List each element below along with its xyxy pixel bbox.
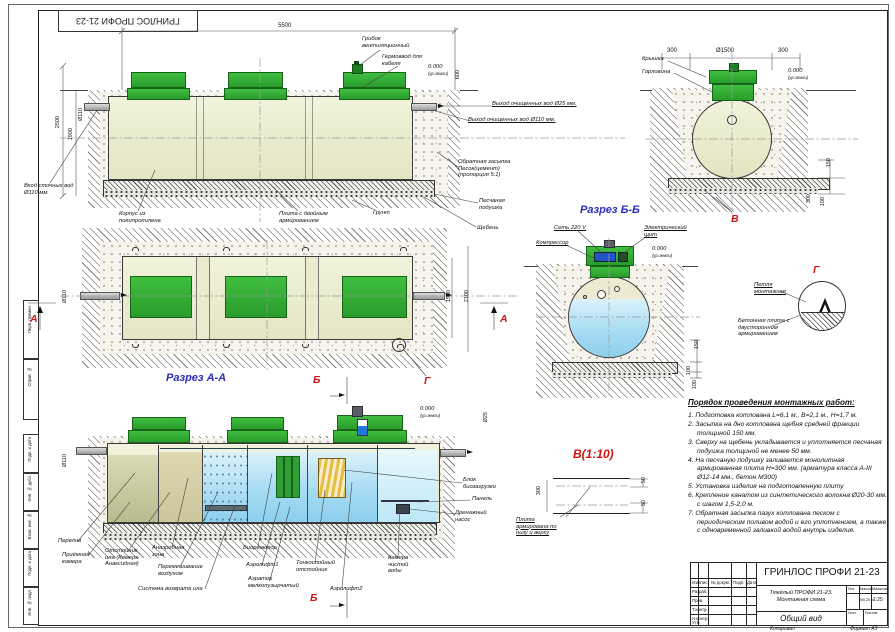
label-cap: Крышка — [642, 56, 672, 63]
dim-300-v: 300 — [536, 486, 542, 495]
lid-top — [131, 72, 186, 88]
ground-line-bb — [682, 266, 698, 267]
label-out25: Выход очищенных вод Ø25 мм. — [492, 101, 584, 108]
label-slab: Плита с двойным армированием — [279, 211, 341, 224]
detail-g-circle — [798, 281, 846, 331]
label-chamber: Камера чистой воды — [388, 555, 420, 575]
drainage-pump — [396, 504, 410, 514]
inlet-arrow-plan — [121, 293, 127, 297]
section-mark-b-top: Б — [313, 374, 320, 386]
lifting-loop-circled — [392, 338, 406, 352]
dim-1500: 1500 — [446, 290, 452, 302]
stamp-desc: Тяжёлый ПРОФИ 21-23.Монтажная схема — [758, 590, 844, 605]
inlet-pipe — [84, 103, 110, 111]
dim-2500: 2500 — [55, 116, 61, 128]
worklist-item: 7. Обратная засыпка пазух котлована песк… — [688, 510, 888, 535]
inlet-pipe-aa — [76, 447, 107, 455]
label-loop: Петля монтажная — [754, 282, 794, 295]
biofilter-plate — [292, 456, 300, 498]
margin-label: Взам. инв. № — [27, 513, 32, 539]
label-body: Корпус из полипропилена — [119, 211, 171, 224]
chamber-wall — [377, 445, 378, 522]
label-out110: Выход очищенных вод Ø110 мм. — [468, 117, 564, 124]
tank-circle-cross — [692, 99, 772, 179]
dim-2100: 2100 — [464, 290, 470, 302]
margin-cell: Подп. и дата — [23, 434, 39, 474]
stamp-brand: ГРИНЛОС ПРОФИ 21-23 — [759, 567, 885, 578]
dim-d110-aa: Ø110 — [62, 454, 68, 467]
label-chamber: Биореактор — [243, 545, 279, 552]
label-chamber: Тонкослойный отстойник — [296, 560, 338, 573]
lid — [339, 88, 410, 100]
section-mark-a-right: А — [500, 313, 508, 325]
stamp-sheet: Лист — [848, 611, 856, 615]
label-pump: Дренажный насос — [455, 510, 493, 523]
outlet-arrow-aa — [467, 450, 473, 454]
air-pipe — [160, 448, 415, 449]
dim-1900: 1900 — [68, 128, 74, 140]
worklist: Порядок проведения монтажных работ: 1. П… — [688, 398, 888, 558]
worklist-item: 3. Сверху на щебень укладывается и уплот… — [688, 439, 888, 456]
dim-1500c: Ø1500 — [716, 48, 734, 54]
label-backfill: Обратная засыпка Песок(цемент) (пропорци… — [458, 159, 518, 179]
stamp-mass-h: Масса — [860, 587, 871, 591]
stamp-row: Разраб. — [692, 589, 707, 594]
ground-line — [60, 90, 88, 91]
caption-razrez-aa: Разрез А-А — [166, 372, 226, 384]
label-panel: Панель — [472, 496, 500, 503]
chamber-wall — [247, 445, 248, 522]
stamp-row: Утв. — [692, 620, 700, 625]
section-mark-a-left: А — [30, 313, 38, 325]
chamber-aerobic — [202, 452, 247, 522]
dim-d110-plan: Ø110 — [62, 290, 68, 303]
caption-detail-v: В(1:10) — [573, 447, 614, 461]
worklist-item: 1. Подготовка котлована L=6,1 м., B=2,1 … — [688, 412, 888, 420]
stamp-view: Общий вид — [758, 614, 844, 623]
margin-label: Справ. № — [27, 367, 32, 387]
margin-cell: Подп. и дата — [23, 548, 39, 588]
label-chamber: Аэролифт2 — [330, 586, 362, 593]
stamp-scale: 1:25 — [873, 597, 883, 603]
label-bio-block: Блок биозагрузки — [463, 477, 497, 490]
lid — [224, 88, 287, 100]
chamber-sludge — [158, 452, 202, 522]
margin-cell: Инв. № дубл. — [23, 472, 39, 512]
worklist-item: 6. Крепление канатом из синтетического в… — [688, 492, 888, 509]
panel-plate — [381, 500, 429, 502]
level-mark: 0.000(ур.земли) — [428, 64, 462, 77]
label-chamber: Анаэробная зона — [152, 545, 188, 558]
caption-razrez-bb: Разрез Б-Б — [580, 204, 640, 216]
lifting-loop — [302, 247, 309, 251]
worklist-item: 4. На песчаную подушку заливается моноли… — [688, 457, 888, 482]
label-soil: Грунт — [373, 210, 403, 217]
tank-circle-bb — [568, 276, 650, 358]
label-chamber: Аэролифт1 — [246, 562, 278, 569]
label-plate-v: Плита армирована по низу и верху — [516, 517, 568, 537]
lifting-loop — [400, 247, 407, 251]
tank-plan-inner — [196, 257, 210, 339]
dim-300b: 300 — [806, 194, 812, 203]
ground-line-cross — [806, 90, 856, 91]
water-bb — [569, 299, 650, 358]
compressor-vent — [604, 240, 615, 248]
neck-bb — [590, 266, 630, 278]
section-mark-b-bottom: Б — [310, 592, 317, 604]
margin-cell: Справ. № — [23, 358, 39, 420]
stamp-row: Т.контр. — [692, 607, 708, 612]
label-sand-cushion: Песчаная подушка — [479, 198, 517, 211]
chamber-wall — [202, 445, 203, 522]
dim-100b-bb: 100 — [692, 380, 698, 389]
bio-media-block — [318, 458, 346, 498]
bubble — [597, 290, 606, 299]
outlet-arrow — [438, 104, 444, 108]
lid-aa-top — [337, 415, 403, 430]
dim-d110: Ø110 — [78, 108, 84, 121]
label-vent: Грибок вентиляционный — [362, 36, 424, 49]
title-block: Изм. Лист № докум. Подп. Дата Разраб. Пр… — [690, 562, 888, 626]
tank-body-side — [108, 96, 413, 180]
stamp-head: № докум. — [711, 580, 730, 585]
lid-aa — [227, 430, 288, 443]
bubble — [583, 295, 587, 299]
worklist-item: 5. Установка изделия на подготовленную п… — [688, 483, 888, 491]
compressor-unit — [594, 252, 616, 262]
biofilter-plate — [284, 456, 292, 498]
detail-mark-g: Г — [813, 264, 819, 276]
margin-cell: Инв. № подл. — [23, 586, 39, 625]
tank-rib — [203, 97, 204, 179]
label-el-panel: Электрический щит — [644, 225, 690, 238]
label-chamber: Отстойник ила (Камера Анаксидная) — [105, 548, 147, 568]
corner-stamp: ГРИНЛОС ПРОФИ 21-23 — [58, 10, 198, 32]
dim-100: 100 — [820, 197, 826, 206]
dim-300r: 300 — [778, 48, 788, 54]
section-arrow-a-left — [37, 306, 43, 313]
label-chamber: Система возврата ила — [138, 586, 208, 593]
section-arrow-b-bottom — [339, 603, 345, 607]
dim-300l: 300 — [667, 48, 677, 54]
tank-rib — [305, 97, 306, 179]
outlet-pipe-plan — [413, 292, 445, 300]
chamber-wall — [158, 445, 159, 522]
worklist-item: 2. Засыпка на дно котлована щебня средне… — [688, 421, 888, 438]
lid-aa — [333, 430, 407, 443]
dim-5500: 5500 — [278, 23, 291, 29]
label-chamber: Приёмная камера — [62, 552, 96, 565]
lid-aa — [128, 430, 190, 443]
tank-plan-inner — [305, 257, 319, 339]
detail-mark-g-plan: Г — [424, 375, 430, 387]
label-compressor: Компрессор — [536, 240, 578, 247]
margin-label: Подп. и дата — [27, 551, 32, 576]
margin-cell: Взам. инв. № — [23, 510, 39, 550]
detail-v-slab — [553, 478, 630, 514]
stamp-scale-h: Масштаб — [872, 587, 888, 591]
stamp-copied: Копировал — [770, 626, 795, 632]
margin-label: Инв. № подл. — [27, 589, 32, 616]
stamp-head: Лист — [700, 580, 709, 585]
inlet-pipe-plan — [80, 292, 120, 300]
lid — [127, 88, 190, 100]
lid-top — [228, 72, 283, 88]
outlet-pipe — [411, 103, 437, 111]
outlet-pipe-aa — [440, 449, 466, 457]
dim-100a-bb: 100 — [686, 366, 692, 375]
label-neck: Горловина — [642, 69, 678, 76]
ground-line-cross — [640, 90, 652, 91]
label-overflow: Перелив — [58, 538, 88, 545]
worklist-title: Порядок проведения монтажных работ: — [688, 398, 888, 407]
label-inlet: Вход сточных вод Ø110 мм. — [24, 183, 76, 196]
stamp-mass: 490,25 кг — [859, 598, 874, 602]
dim-d25-aa: Ø25 — [483, 412, 489, 422]
gravel-bed — [103, 190, 435, 197]
gravel-cross — [668, 188, 818, 194]
vent-cap — [352, 64, 363, 74]
compressor-detail — [618, 252, 628, 262]
ground-line-bb — [524, 266, 538, 267]
dim-50b-v: 50 — [641, 500, 647, 506]
lid-aa-top — [231, 417, 284, 430]
ground-line — [460, 90, 478, 91]
lid-plan — [342, 276, 407, 318]
stamp-sheets: Листов — [865, 611, 877, 615]
airlift-device — [357, 419, 368, 436]
aeration-shelf — [205, 505, 247, 511]
stamp-head: Подп. — [733, 580, 744, 585]
neck-port — [727, 115, 737, 125]
label-net220: Сеть 220 V — [554, 225, 594, 232]
corner-stamp-text: ГРИНЛОС ПРОФИ 21-23 — [76, 16, 180, 26]
label-plate-reinf: Бетонная плита с двусторонним армировани… — [738, 318, 790, 338]
stamp-lit-h: Лит. — [848, 587, 855, 591]
section-arrow-b-top — [339, 393, 345, 397]
label-chamber: Перемешивание воздухом — [158, 564, 200, 577]
dim-50a-v: 50 — [641, 477, 647, 483]
vent-cap-aa — [352, 406, 363, 417]
label-gravel: Щебень — [477, 225, 513, 232]
lid-plan — [225, 276, 287, 318]
lid-cross — [709, 70, 757, 84]
biofilter-plate — [276, 456, 284, 498]
vent-cross — [729, 63, 739, 72]
detail-g-concrete — [801, 312, 845, 331]
stamp-format: Формат А3 — [850, 626, 877, 632]
tank-rib — [196, 97, 197, 179]
detail-mark-v: В — [731, 213, 739, 225]
dim-150-bb: 150 — [694, 340, 700, 349]
chamber-receiving — [108, 455, 158, 522]
level-mark-aa: 0.000 (ур.земли) — [420, 406, 454, 419]
tank-rib — [312, 97, 313, 179]
level-mark-cross: 0.000(ур.земли) — [788, 68, 822, 81]
neck-cross — [712, 84, 754, 101]
margin-label: Инв. № дубл. — [27, 475, 32, 501]
bubble — [614, 286, 620, 292]
dim-150: 150 — [826, 158, 832, 167]
section-arrow-a-right — [491, 306, 497, 313]
margin-label: Подп. и дата — [27, 437, 32, 462]
gravel-bb — [552, 372, 672, 378]
drawing-sheet: Перв. примен. Справ. № Подп. и дата Инв.… — [0, 0, 895, 632]
chamber-wall — [307, 445, 308, 522]
stamp-row: Пров. — [692, 598, 703, 603]
gravel-bed-aa — [103, 533, 435, 540]
label-chamber: Аэратор мелкопузырчатый — [248, 576, 292, 589]
lid-top — [343, 72, 406, 88]
vent-cap-top — [354, 61, 359, 64]
lid-plan — [130, 276, 192, 318]
level-mark-bb: 0.000(ур.земли) — [652, 246, 686, 259]
lid-aa-top — [132, 417, 186, 430]
lifting-loop — [132, 247, 139, 251]
lifting-loop — [223, 247, 230, 251]
